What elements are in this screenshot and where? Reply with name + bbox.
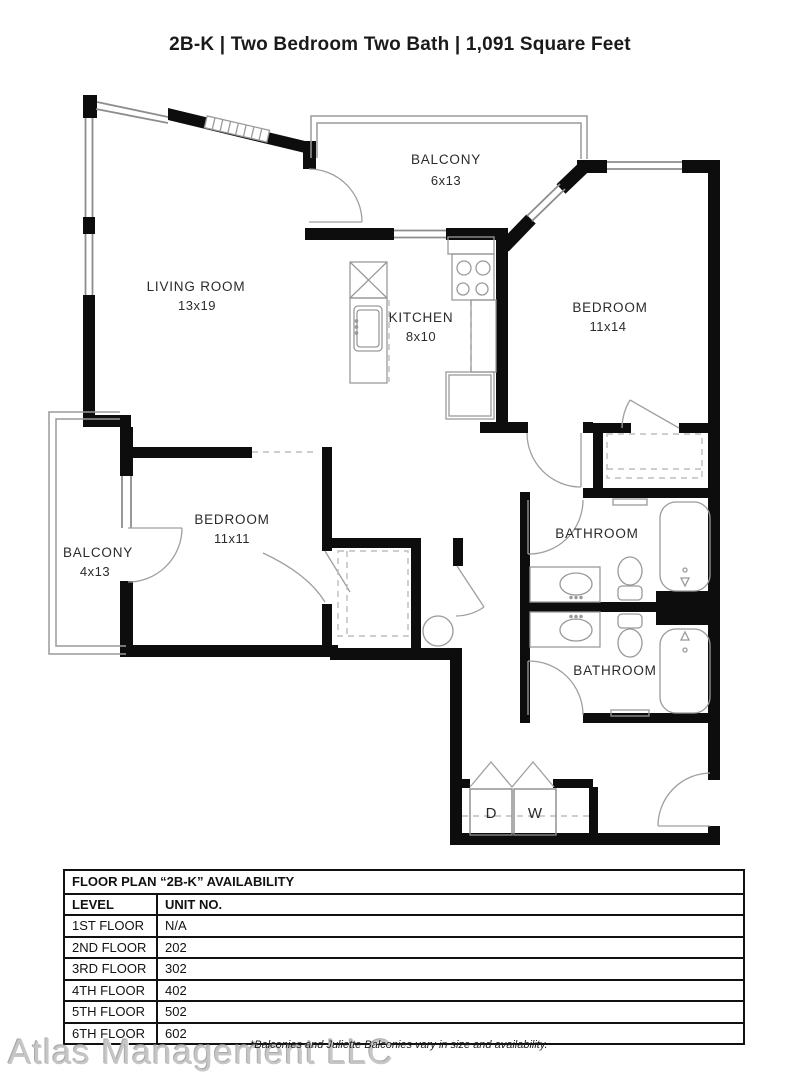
label-living-room: LIVING ROOM <box>147 279 246 294</box>
refrigerator <box>446 372 494 419</box>
bedroom2-wardrobe <box>338 551 408 636</box>
cell-unit: 302 <box>156 959 743 979</box>
dims-balcony-left: 4x13 <box>80 564 110 579</box>
bathtub-1 <box>660 502 710 591</box>
footnote: *Balconies and Juliette Balconies vary i… <box>250 1039 548 1051</box>
floor-plan-page: 2B-K | Two Bedroom Two Bath | 1,091 Squa… <box>0 0 800 1080</box>
stove <box>452 254 494 300</box>
cell-unit: 402 <box>156 981 743 1001</box>
label-kitchen: KITCHEN <box>389 310 454 325</box>
label-bathroom-1: BATHROOM <box>555 526 638 541</box>
cell-level: 5TH FLOOR <box>65 1002 156 1022</box>
towel-ledge-1 <box>613 499 647 505</box>
bedroom1-door <box>527 433 581 487</box>
entry-door <box>658 773 710 826</box>
table-row: 4TH FLOOR 402 <box>65 979 743 1001</box>
plumbing-chase <box>656 591 712 625</box>
table-row: 2ND FLOOR 202 <box>65 936 743 958</box>
vanity-sink-1 <box>530 567 600 602</box>
cell-level: 1ST FLOOR <box>65 916 156 936</box>
cell-unit: N/A <box>156 916 743 936</box>
balcony-door-top <box>309 169 362 222</box>
label-balcony-top: BALCONY <box>411 152 481 167</box>
cell-level: 2ND FLOOR <box>65 938 156 958</box>
dims-bedroom-1: 11x14 <box>590 319 627 334</box>
dims-kitchen: 8x10 <box>406 329 436 344</box>
water-heater <box>423 616 453 646</box>
label-dryer: D <box>486 805 497 822</box>
table-row: 3RD FLOOR 302 <box>65 957 743 979</box>
wall-vent-grille <box>204 116 269 142</box>
cell-unit: 502 <box>156 1002 743 1022</box>
label-bedroom-1: BEDROOM <box>572 300 647 315</box>
table-title: FLOOR PLAN “2B-K” AVAILABILITY <box>65 874 294 889</box>
floor-plan-drawing: BALCONY 6x13 LIVING ROOM 13x19 KITCHEN 8… <box>0 0 800 862</box>
balcony-door-left <box>128 528 182 582</box>
counter-right <box>471 300 496 372</box>
col-header-level: LEVEL <box>65 895 156 915</box>
dims-living-room: 13x19 <box>178 298 216 313</box>
table-row: 1ST FLOOR N/A <box>65 914 743 936</box>
pantry-cabinet <box>350 262 387 298</box>
kitchen-fixtures <box>204 116 496 646</box>
bedroom1-wardrobe <box>607 434 702 478</box>
availability-table: FLOOR PLAN “2B-K” AVAILABILITY LEVEL UNI… <box>63 869 745 1045</box>
cell-level: 4TH FLOOR <box>65 981 156 1001</box>
bathtub-2 <box>660 629 710 713</box>
kitchen-sink <box>354 306 382 351</box>
label-bathroom-2: BATHROOM <box>573 663 656 678</box>
cell-level: 3RD FLOOR <box>65 959 156 979</box>
toilet-2 <box>618 614 642 657</box>
label-bedroom-2: BEDROOM <box>194 512 269 527</box>
col-header-unit: UNIT NO. <box>156 895 743 915</box>
bedroom2-door <box>263 551 350 602</box>
utility-closet-door <box>456 566 484 616</box>
laundry-appliances <box>470 789 556 835</box>
dims-bedroom-2: 11x11 <box>214 531 250 546</box>
table-header-row: LEVEL UNIT NO. <box>65 893 743 915</box>
table-title-row: FLOOR PLAN “2B-K” AVAILABILITY <box>65 871 743 893</box>
laundry-bifold-doors <box>470 762 554 787</box>
label-balcony-left: BALCONY <box>63 545 133 560</box>
vanity-sink-2 <box>530 612 600 647</box>
dims-balcony-top: 6x13 <box>431 173 461 188</box>
walls <box>83 95 720 845</box>
toilet-1 <box>618 557 642 600</box>
table-row: 5TH FLOOR 502 <box>65 1000 743 1022</box>
cell-unit: 202 <box>156 938 743 958</box>
label-washer: W <box>528 805 543 822</box>
